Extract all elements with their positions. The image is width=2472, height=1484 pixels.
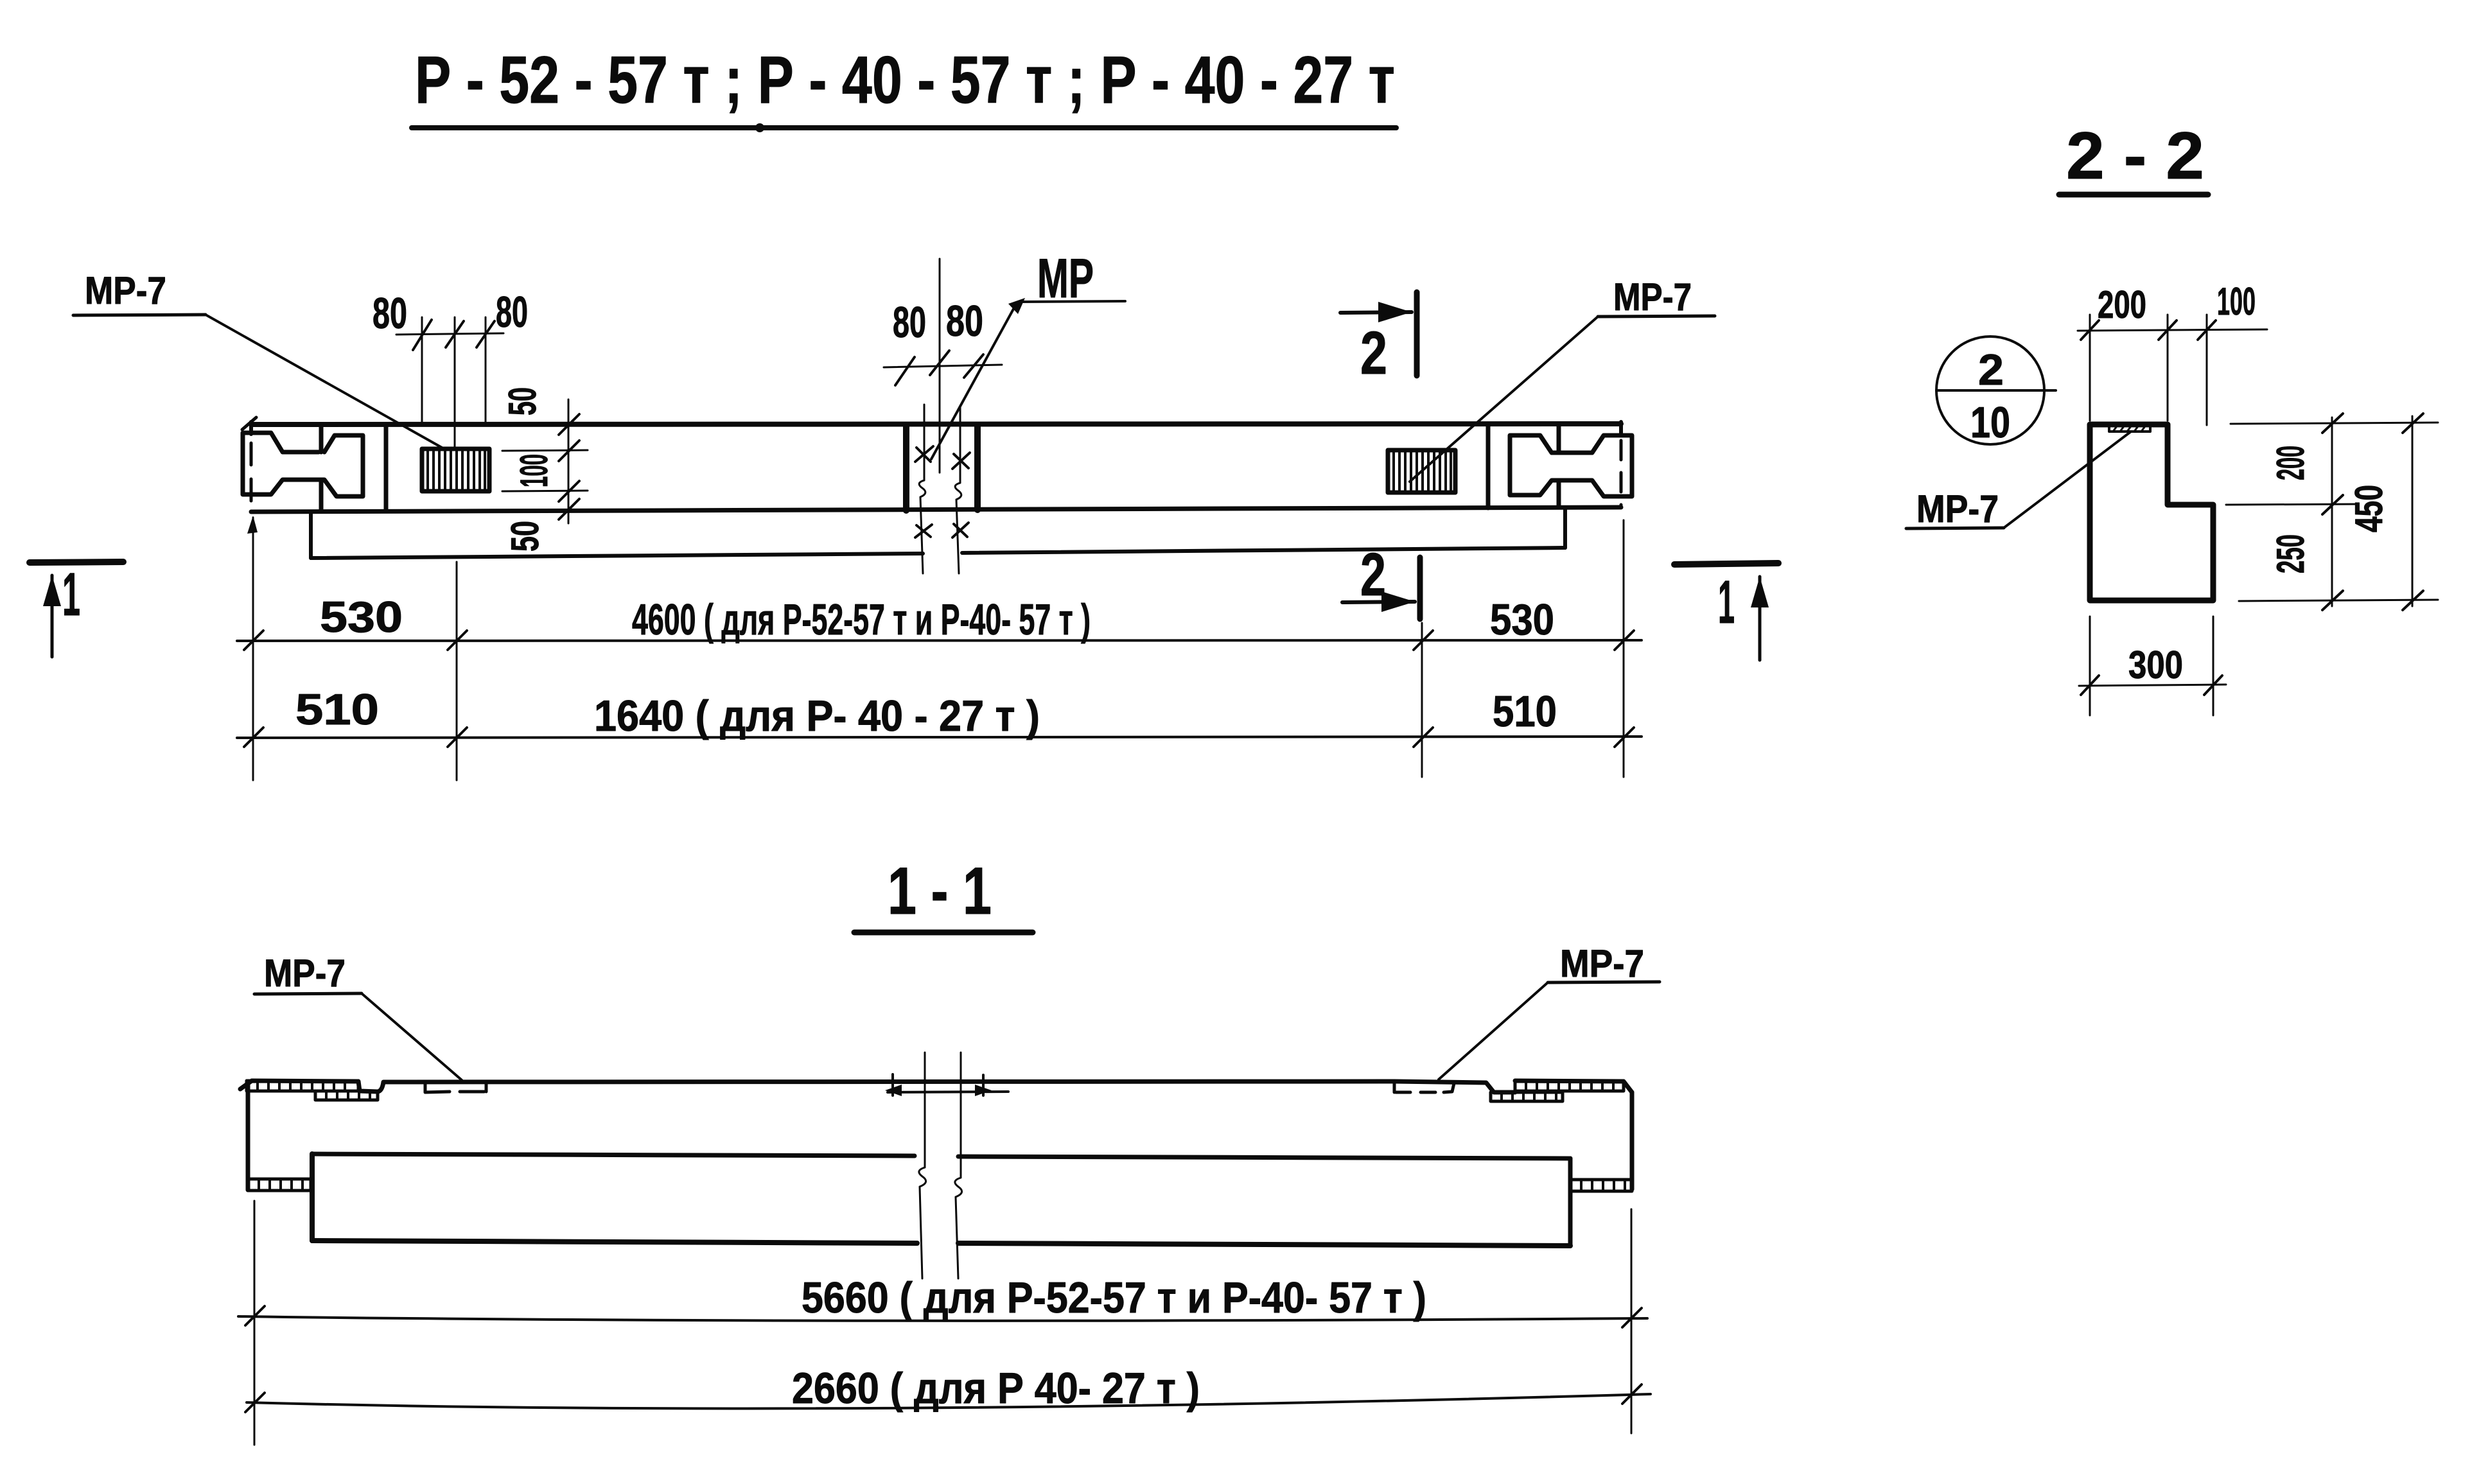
svg-text:1: 1 — [1718, 568, 1735, 636]
svg-text:Р - 52 - 57 т ; Р - 40 - 57 т: Р - 52 - 57 т ; Р - 40 - 57 т ; Р - 40 -… — [415, 43, 1395, 118]
svg-text:1 - 1: 1 - 1 — [888, 854, 992, 929]
svg-text:МР-7: МР-7 — [1560, 942, 1644, 985]
svg-text:200: 200 — [2269, 446, 2312, 480]
svg-text:МР-7: МР-7 — [264, 952, 346, 995]
svg-text:80: 80 — [496, 288, 528, 336]
svg-text:1640 ( для Р- 40 - 27 т ): 1640 ( для Р- 40 - 27 т ) — [594, 692, 1040, 740]
svg-text:2660 ( для Р 40- 27 т ): 2660 ( для Р 40- 27 т ) — [792, 1364, 1200, 1413]
svg-text:80: 80 — [373, 289, 407, 338]
svg-text:2 - 2: 2 - 2 — [2066, 119, 2204, 193]
svg-text:4600 ( для Р-52-57 т и Р-40-: 4600 ( для Р-52-57 т и Р-40- 57 т ) — [632, 595, 1091, 644]
svg-text:50: 50 — [504, 521, 547, 552]
svg-text:530: 530 — [1490, 595, 1554, 644]
svg-text:200: 200 — [2098, 283, 2146, 326]
svg-text:2: 2 — [1978, 345, 2004, 394]
svg-text:2: 2 — [1360, 541, 1386, 609]
svg-text:510: 510 — [295, 685, 379, 734]
svg-text:5660 ( для Р-52-57 т и Р-40-: 5660 ( для Р-52-57 т и Р-40- 57 т ) — [802, 1273, 1426, 1322]
svg-text:530: 530 — [320, 593, 403, 642]
svg-text:250: 250 — [2269, 534, 2312, 573]
svg-text:510: 510 — [1493, 687, 1557, 736]
svg-text:80: 80 — [946, 297, 983, 345]
svg-text:10: 10 — [1970, 398, 2010, 447]
svg-text:1: 1 — [62, 561, 80, 629]
svg-text:МР-7: МР-7 — [1613, 275, 1692, 319]
svg-text:МР-7: МР-7 — [1916, 487, 1999, 530]
svg-text:100: 100 — [2217, 280, 2256, 323]
svg-text:450: 450 — [2347, 485, 2390, 532]
svg-text:80: 80 — [893, 298, 926, 347]
svg-text:50: 50 — [501, 387, 544, 415]
svg-text:2: 2 — [1360, 319, 1387, 387]
svg-text:300: 300 — [2128, 643, 2183, 686]
svg-text:МР-7: МР-7 — [85, 269, 166, 312]
svg-text:100: 100 — [513, 454, 556, 487]
